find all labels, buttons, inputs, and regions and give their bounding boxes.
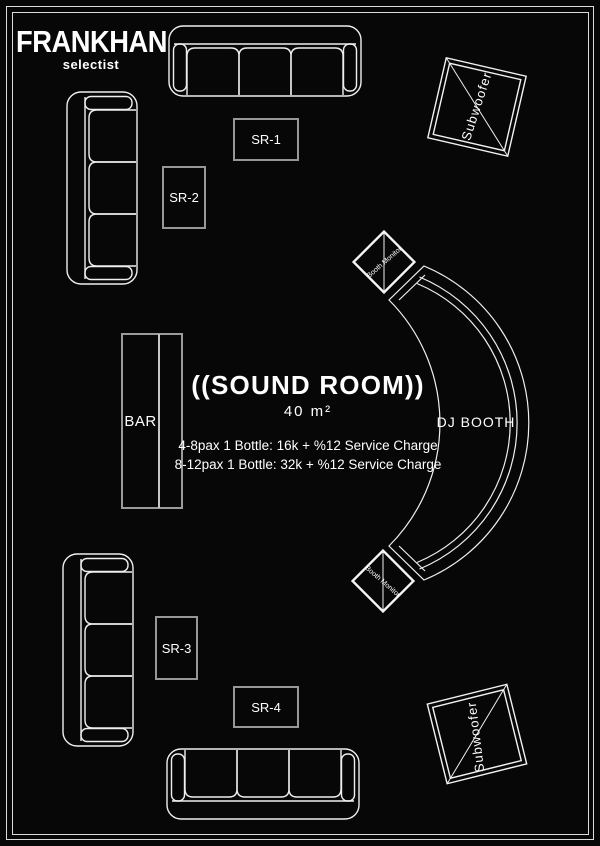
table-sr-2: SR-2 <box>162 166 206 229</box>
sound-room-floor-plan: FRANKHAN selectist <box>0 0 600 846</box>
booth-monitor-top-label: Booth Monitor <box>366 245 404 279</box>
sofa-bottom <box>167 749 359 819</box>
sofa-bottom-left <box>63 554 133 746</box>
table-sr-2-label: SR-2 <box>169 190 199 205</box>
subwoofer-bottom: Subwoofer <box>427 684 526 783</box>
pricing-line-1: 4-8pax 1 Bottle: 16k + %12 Service Charg… <box>155 437 461 456</box>
subwoofer-top: Subwoofer <box>428 58 526 156</box>
table-sr-1-label: SR-1 <box>251 132 281 147</box>
room-info: ((SOUND ROOM)) 40 m² 4-8pax 1 Bottle: 16… <box>155 370 461 474</box>
subwoofer-top-label: Subwoofer <box>458 70 494 142</box>
table-sr-4-label: SR-4 <box>251 700 281 715</box>
table-sr-1: SR-1 <box>233 118 299 161</box>
room-pricing: 4-8pax 1 Bottle: 16k + %12 Service Charg… <box>155 437 461 474</box>
sofa-top <box>169 26 361 96</box>
table-sr-3-label: SR-3 <box>162 641 192 656</box>
pricing-line-2: 8-12pax 1 Bottle: 32k + %12 Service Char… <box>155 456 461 475</box>
table-sr-4: SR-4 <box>233 686 299 728</box>
subwoofer-bottom-label: Subwoofer <box>464 701 488 773</box>
sofa-left <box>67 92 137 284</box>
bar-label: BAR <box>123 335 158 507</box>
booth-monitor-bottom: Booth Monitor <box>353 551 414 612</box>
dj-booth-label: DJ BOOTH <box>436 414 516 430</box>
table-sr-3: SR-3 <box>155 616 198 680</box>
room-title: ((SOUND ROOM)) <box>155 370 461 401</box>
room-area: 40 m² <box>155 403 461 420</box>
